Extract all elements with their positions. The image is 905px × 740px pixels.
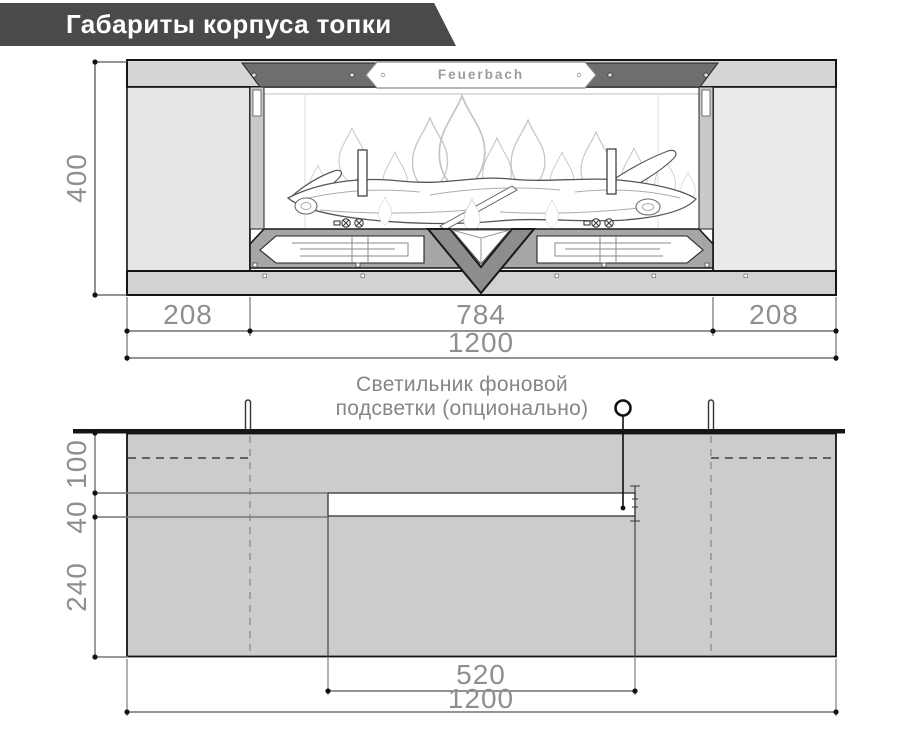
- dim-left-208: 208: [128, 300, 248, 330]
- dim-height-400: 400: [61, 128, 93, 228]
- page-title: Габариты корпуса топки: [0, 9, 392, 40]
- dim-total-1200-plan: 1200: [421, 684, 541, 714]
- optional-light-note: Светильник фоновой подсветки (опциональн…: [262, 373, 662, 421]
- light-slot: [328, 493, 635, 516]
- plan-body: [127, 434, 836, 657]
- plan-view-drawing: [73, 400, 845, 657]
- technical-drawing: [0, 0, 905, 740]
- dim-rear-240: 240: [61, 537, 93, 637]
- brand-logo-text: Feuerbach: [401, 67, 561, 83]
- igniter-left: [358, 150, 367, 196]
- note-line-2: подсветки (опционально): [336, 397, 589, 420]
- dim-total-1200-front: 1200: [421, 328, 541, 358]
- front-view-drawing: [127, 60, 836, 295]
- dim-firebox-784: 784: [421, 300, 541, 330]
- spec-sheet: Габариты корпуса топки Feuerbach 400 208…: [0, 0, 905, 740]
- igniter-right: [607, 149, 616, 194]
- mount-pin-left: [246, 400, 251, 432]
- dim-right-208: 208: [714, 300, 834, 330]
- mount-pin-right: [709, 400, 714, 432]
- title-banner: Габариты корпуса топки: [0, 3, 456, 46]
- note-line-1: Светильник фоновой: [356, 373, 568, 396]
